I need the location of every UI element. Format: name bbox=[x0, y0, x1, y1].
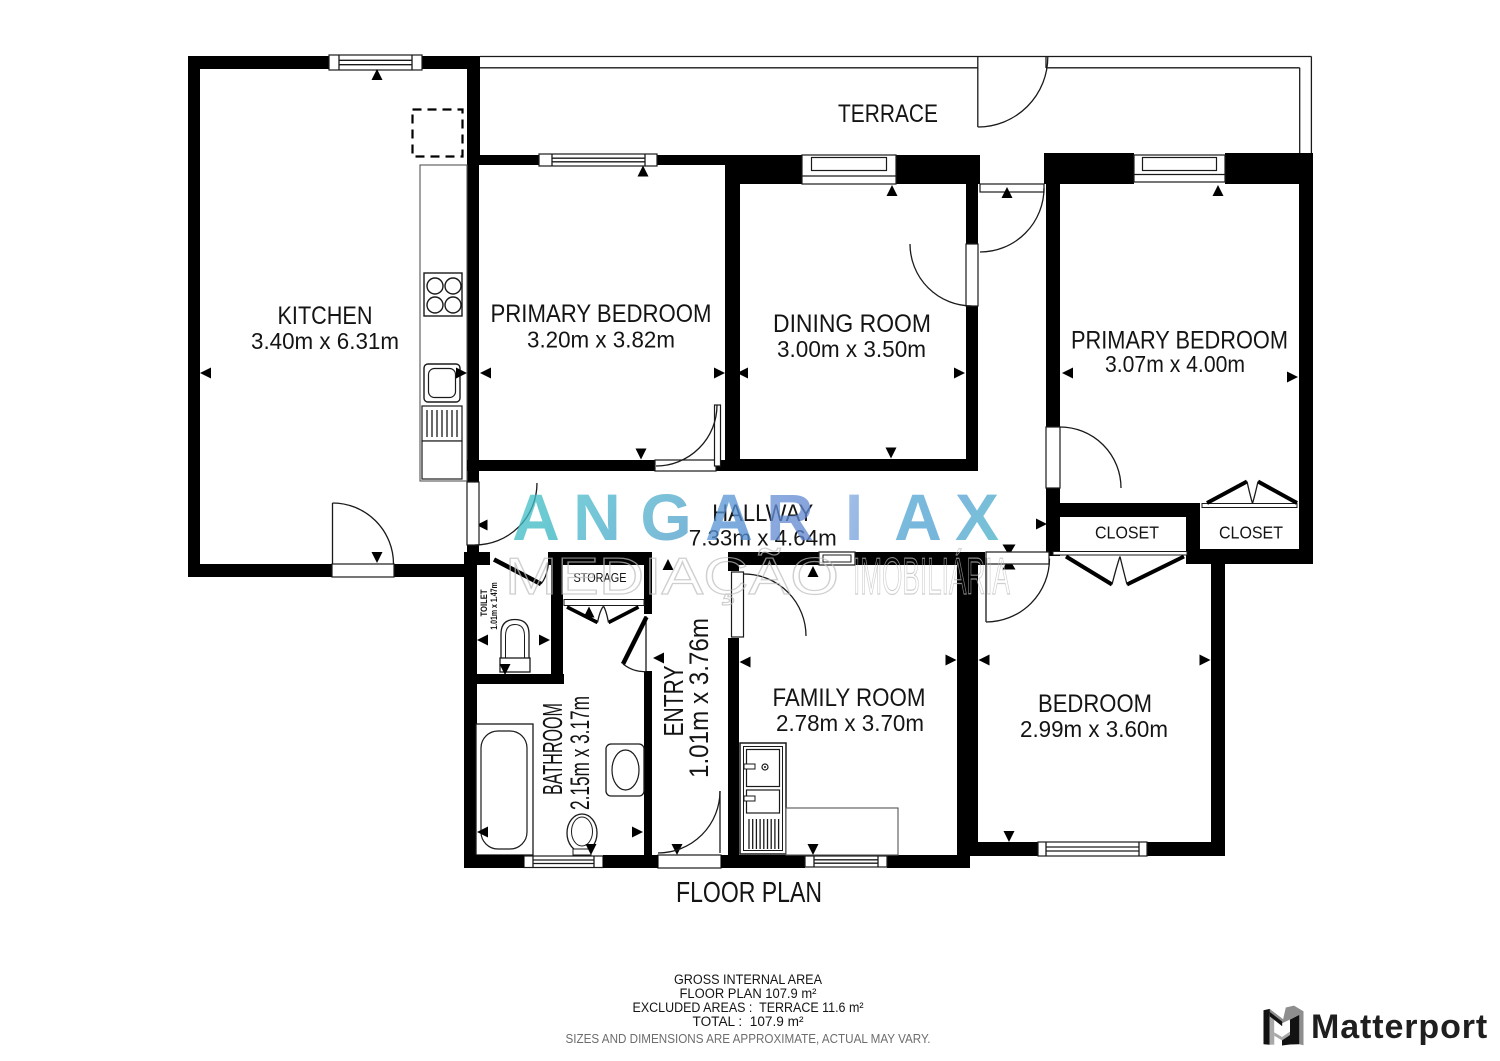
svg-text:A: A bbox=[705, 480, 753, 554]
svg-text:BEDROOM: BEDROOM bbox=[1038, 690, 1152, 718]
svg-text:A: A bbox=[512, 480, 560, 554]
svg-text:FLOOR PLAN: FLOOR PLAN bbox=[676, 877, 822, 909]
svg-text:1.01m x 3.76m: 1.01m x 3.76m bbox=[684, 618, 714, 778]
svg-text:TERRACE: TERRACE bbox=[838, 100, 938, 128]
svg-text:KITCHEN: KITCHEN bbox=[278, 302, 373, 330]
svg-text:MEDIAÇÃO: MEDIAÇÃO bbox=[505, 548, 839, 606]
svg-text:FAMILY ROOM: FAMILY ROOM bbox=[773, 684, 926, 712]
svg-text:3.40m x 6.31m: 3.40m x 6.31m bbox=[251, 328, 399, 354]
svg-text:R: R bbox=[766, 480, 814, 554]
svg-text:2.15m x 3.17m: 2.15m x 3.17m bbox=[565, 696, 595, 810]
svg-text:A: A bbox=[894, 480, 942, 554]
svg-text:3.20m x 3.82m: 3.20m x 3.82m bbox=[527, 327, 675, 353]
svg-text:Matterport: Matterport bbox=[1311, 1008, 1488, 1046]
svg-text:DINING ROOM: DINING ROOM bbox=[773, 310, 931, 338]
svg-text:1.01m x 1.47m: 1.01m x 1.47m bbox=[489, 582, 500, 630]
svg-text:N: N bbox=[573, 480, 621, 554]
svg-text:2.78m x 3.70m: 2.78m x 3.70m bbox=[776, 710, 924, 736]
svg-text:3.00m x 3.50m: 3.00m x 3.50m bbox=[777, 336, 926, 362]
svg-text:TOTAL : 107.9 m²: TOTAL : 107.9 m² bbox=[693, 1014, 804, 1029]
svg-text:X: X bbox=[955, 480, 999, 554]
svg-text:FLOOR PLAN 107.9 m²: FLOOR PLAN 107.9 m² bbox=[680, 986, 817, 1001]
svg-text:BATHROOM: BATHROOM bbox=[537, 703, 568, 795]
svg-text:PRIMARY BEDROOM: PRIMARY BEDROOM bbox=[491, 300, 712, 328]
svg-text:G: G bbox=[640, 480, 691, 554]
svg-text:GROSS INTERNAL AREA: GROSS INTERNAL AREA bbox=[674, 972, 822, 987]
svg-text:3.07m x 4.00m: 3.07m x 4.00m bbox=[1105, 351, 1245, 377]
svg-text:CLOSET: CLOSET bbox=[1095, 523, 1159, 543]
svg-text:I: I bbox=[845, 480, 863, 554]
svg-text:SIZES AND DIMENSIONS ARE APPRO: SIZES AND DIMENSIONS ARE APPROXIMATE, AC… bbox=[566, 1031, 931, 1046]
svg-text:IMOBILIÁRIA: IMOBILIÁRIA bbox=[853, 548, 1010, 606]
svg-text:CLOSET: CLOSET bbox=[1219, 523, 1283, 543]
svg-text:EXCLUDED AREAS : TERRACE 11.6: EXCLUDED AREAS : TERRACE 11.6 m² bbox=[633, 1000, 864, 1015]
svg-text:2.99m x 3.60m: 2.99m x 3.60m bbox=[1020, 716, 1168, 742]
